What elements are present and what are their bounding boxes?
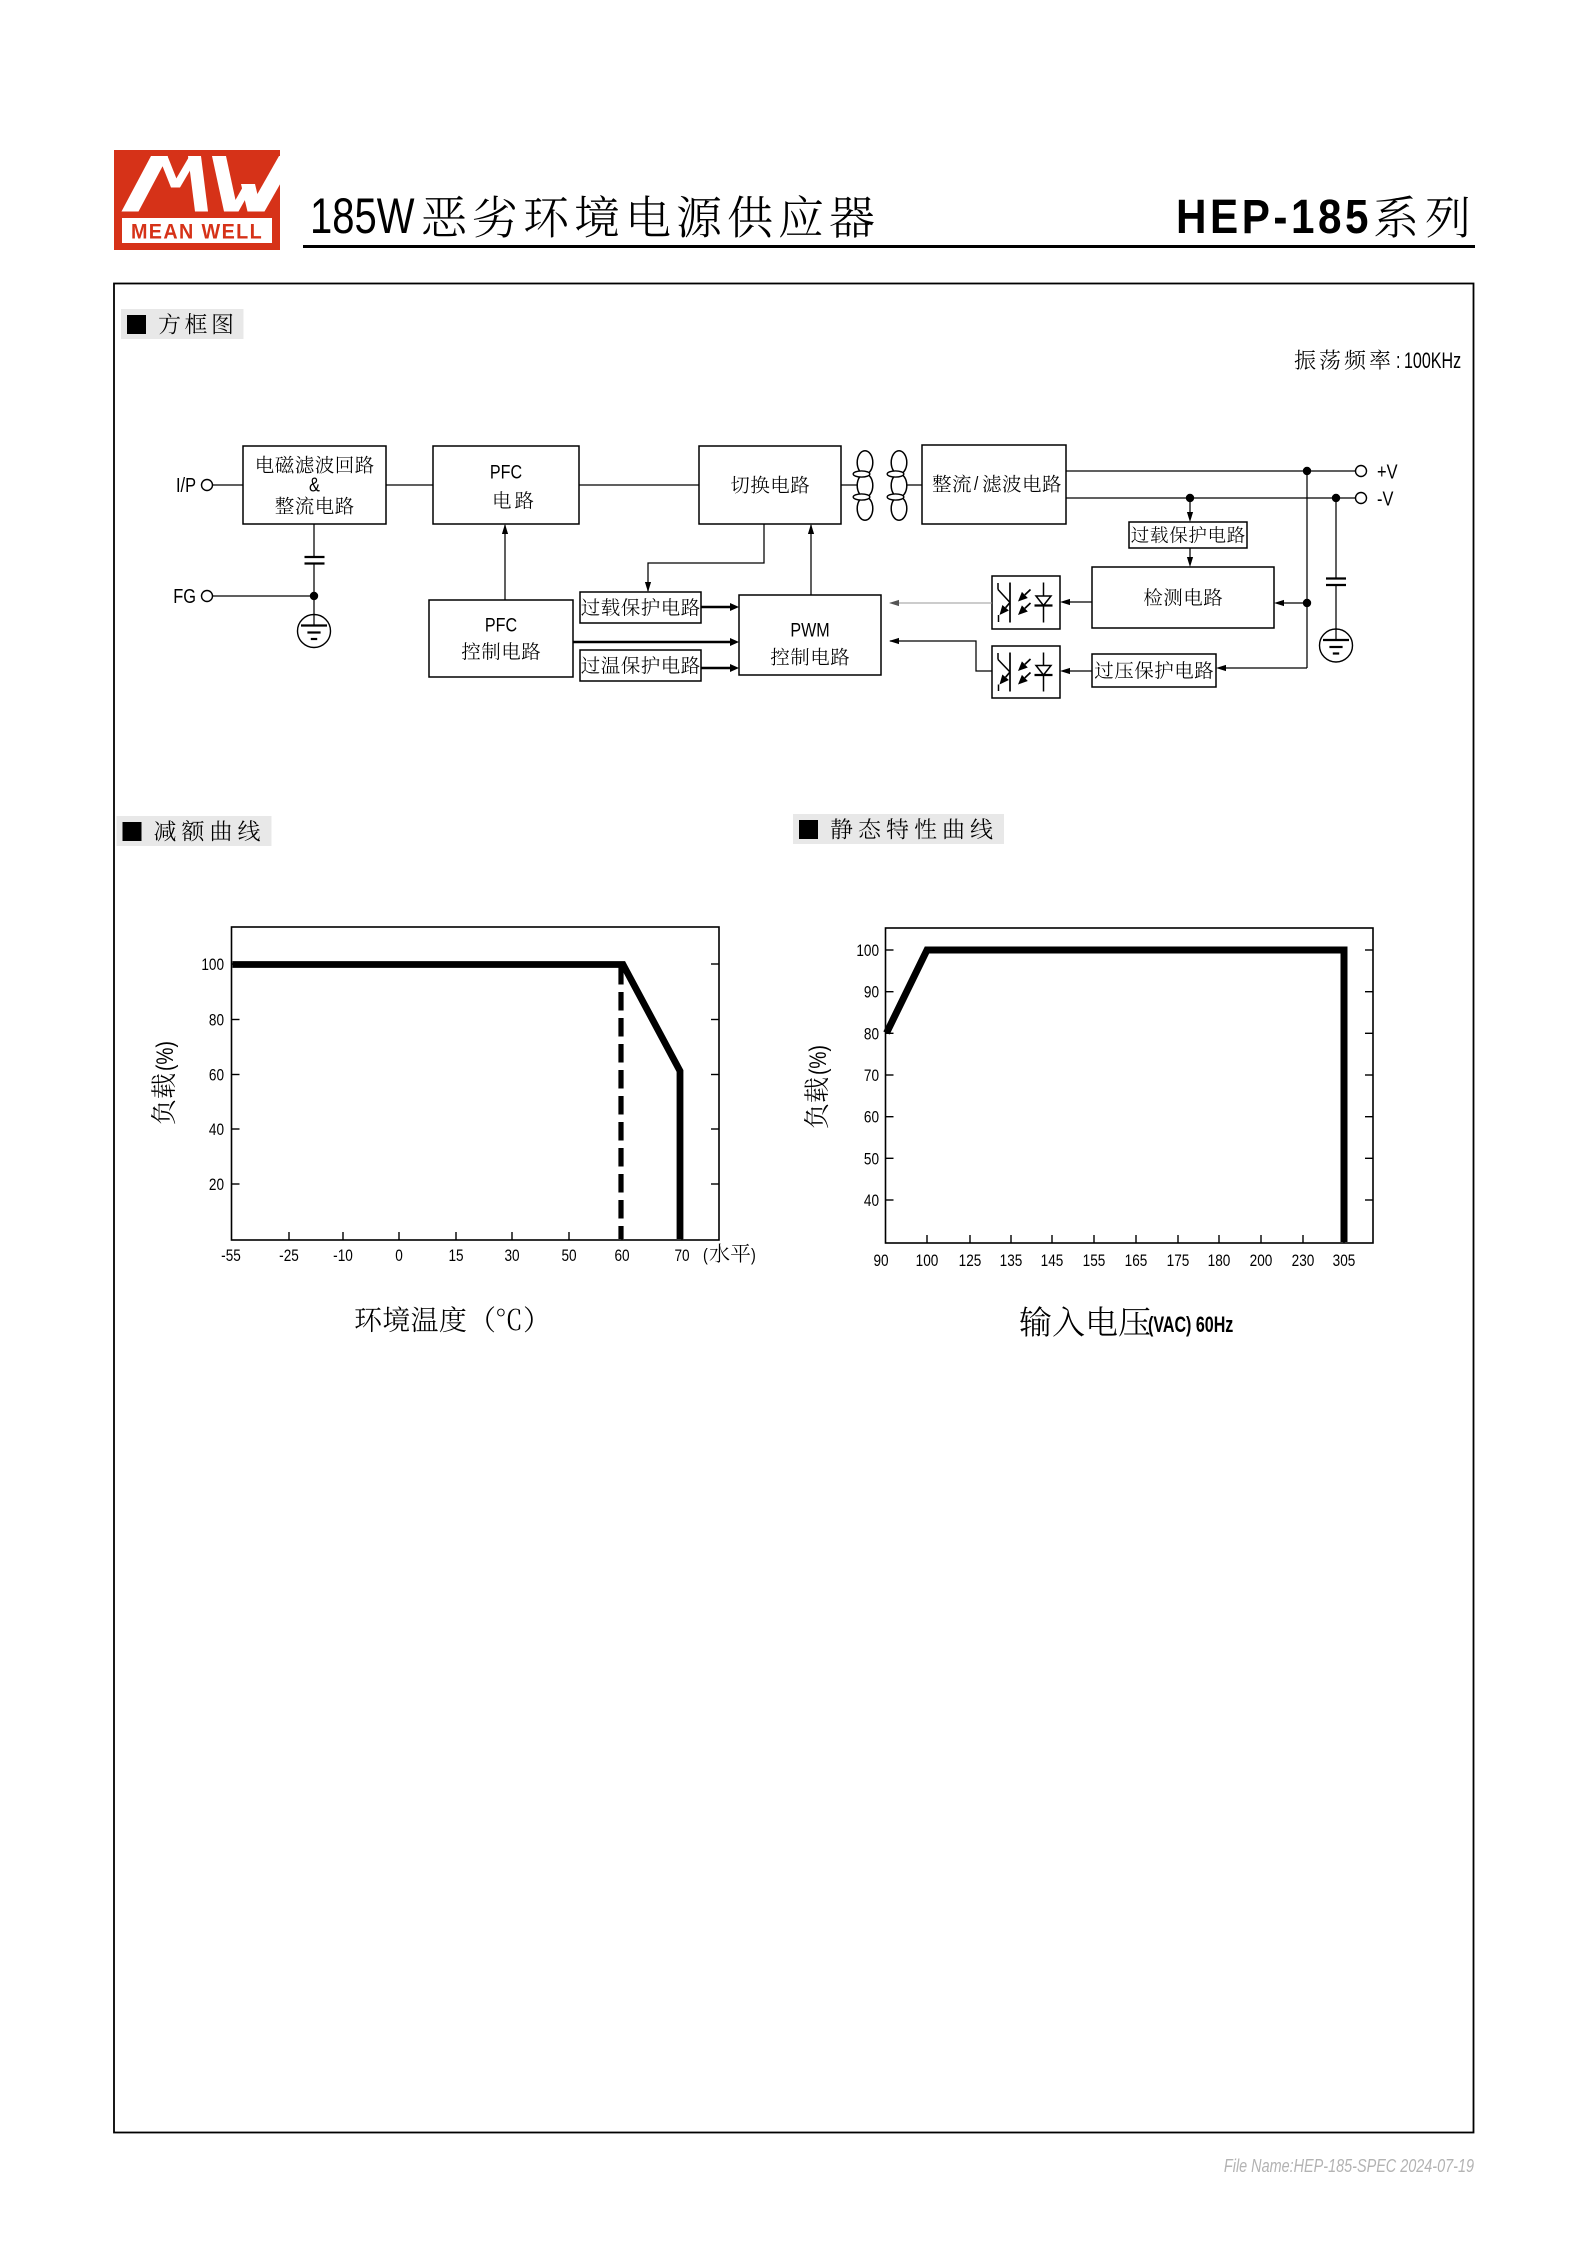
svg-text:90: 90 <box>864 983 879 1002</box>
svg-text:90: 90 <box>873 1252 888 1271</box>
svg-text:175: 175 <box>1167 1252 1190 1271</box>
svg-text:(%): (%) <box>804 1045 832 1075</box>
svg-text:155: 155 <box>1083 1252 1106 1271</box>
svg-text:+V: +V <box>1377 460 1398 483</box>
svg-text:165: 165 <box>1125 1252 1148 1271</box>
svg-text:145: 145 <box>1041 1252 1064 1271</box>
svg-text:20: 20 <box>209 1176 224 1195</box>
svg-text:100: 100 <box>916 1252 939 1271</box>
svg-text:(VAC) 60Hz: (VAC) 60Hz <box>1148 1314 1233 1338</box>
svg-text:125: 125 <box>959 1252 982 1271</box>
svg-text:MEAN WELL: MEAN WELL <box>131 220 263 244</box>
svg-text:305: 305 <box>1333 1252 1356 1271</box>
svg-text:PWM: PWM <box>790 619 829 641</box>
svg-text:180: 180 <box>1208 1252 1231 1271</box>
svg-text:-25: -25 <box>279 1247 299 1266</box>
svg-text:70: 70 <box>864 1067 879 1086</box>
svg-text:60: 60 <box>614 1247 629 1266</box>
svg-text:I/P: I/P <box>176 473 196 496</box>
svg-text:0: 0 <box>395 1247 403 1266</box>
svg-text:100: 100 <box>856 942 879 961</box>
svg-text:60: 60 <box>209 1066 224 1085</box>
svg-text:100KHz: 100KHz <box>1404 350 1461 374</box>
svg-text:50: 50 <box>561 1247 576 1266</box>
svg-text:30: 30 <box>504 1247 519 1266</box>
svg-text:PFC: PFC <box>490 461 522 483</box>
svg-text:-55: -55 <box>221 1247 241 1266</box>
svg-text:40: 40 <box>209 1121 224 1140</box>
svg-text:185W: 185W <box>310 188 415 244</box>
svg-text:HEP-185: HEP-185 <box>1176 189 1372 243</box>
svg-text:80: 80 <box>209 1011 224 1030</box>
svg-text:-10: -10 <box>333 1247 353 1266</box>
svg-text:(%): (%) <box>151 1041 179 1071</box>
svg-text:-V: -V <box>1377 487 1394 510</box>
svg-text:40: 40 <box>864 1192 879 1211</box>
svg-text:230: 230 <box>1292 1252 1315 1271</box>
svg-text:(: ( <box>703 1246 708 1266</box>
svg-text:70: 70 <box>674 1247 689 1266</box>
svg-text:PFC: PFC <box>485 614 517 636</box>
svg-text:&: & <box>309 473 320 496</box>
svg-text:80: 80 <box>864 1025 879 1044</box>
svg-text:135: 135 <box>1000 1252 1023 1271</box>
svg-text:FG: FG <box>173 584 196 607</box>
svg-text:60: 60 <box>864 1108 879 1127</box>
svg-text:15: 15 <box>448 1247 463 1266</box>
svg-text:File Name:HEP-185-SPEC 2024-07: File Name:HEP-185-SPEC 2024-07-19 <box>1224 2155 1474 2176</box>
svg-text:100: 100 <box>201 956 224 975</box>
svg-text:50: 50 <box>864 1150 879 1169</box>
svg-text:): ) <box>751 1246 756 1266</box>
svg-text::: : <box>1396 350 1400 374</box>
svg-text:/: / <box>974 473 978 495</box>
svg-text:200: 200 <box>1250 1252 1273 1271</box>
